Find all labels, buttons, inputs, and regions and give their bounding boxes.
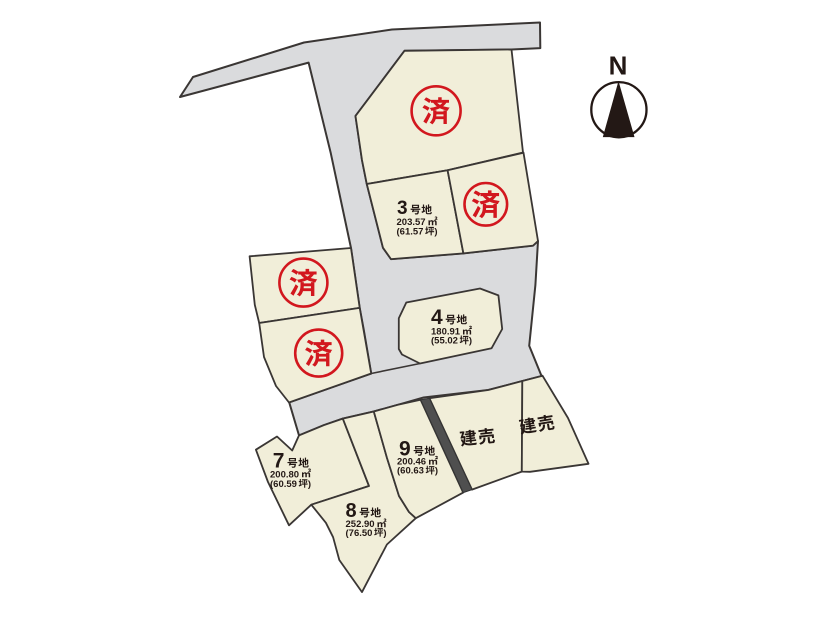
svg-text:3: 3 (397, 198, 408, 219)
svg-text:): ) (434, 227, 437, 238)
svg-text:(60.63: (60.63 (397, 466, 424, 477)
svg-text:(60.59: (60.59 (270, 479, 297, 490)
svg-text:N: N (609, 51, 628, 81)
svg-text:): ) (308, 479, 311, 490)
svg-text:(61.57: (61.57 (397, 227, 424, 238)
svg-text:): ) (383, 528, 386, 539)
svg-text:(55.02: (55.02 (431, 336, 458, 347)
svg-text:): ) (469, 336, 472, 347)
svg-text:): ) (435, 466, 438, 477)
svg-text:(76.50: (76.50 (346, 528, 373, 539)
